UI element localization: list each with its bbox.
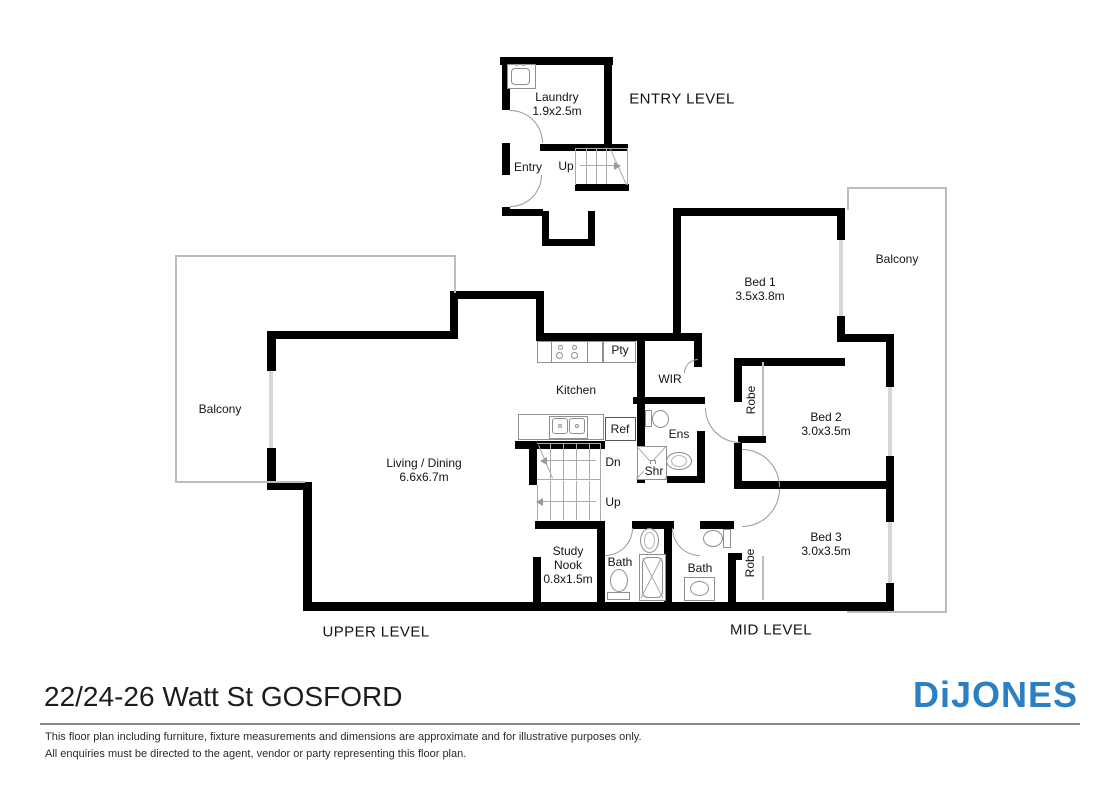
cooktop-burner <box>572 345 577 350</box>
wall <box>542 239 595 246</box>
balcony-right-label: Balcony <box>876 252 919 266</box>
disclaimer-line-2: All enquiries must be directed to the ag… <box>45 748 466 760</box>
wall <box>738 436 766 443</box>
balcony-left-label: Balcony <box>199 402 242 416</box>
wall <box>667 476 705 483</box>
stair-riser <box>576 444 577 479</box>
ens-basin-inner <box>671 455 687 467</box>
wall <box>633 397 705 404</box>
wall <box>734 443 742 483</box>
bath2-toilet-tank <box>723 529 731 548</box>
sink-drain <box>575 424 579 428</box>
room-name: Living / Dining <box>386 456 461 470</box>
robe-bed2-label: Robe <box>744 386 758 415</box>
wall <box>267 448 276 490</box>
bath1-label: Bath <box>608 555 633 569</box>
balcony-right-outline <box>945 187 947 613</box>
bed2-label: Bed 2 3.0x3.5m <box>801 410 850 438</box>
dijones-logo: DiJONES <box>913 674 1078 716</box>
room-dims: 3.0x3.5m <box>801 424 850 438</box>
room-name: Bed 3 <box>801 530 850 544</box>
pantry-label: Pty <box>611 343 628 357</box>
disclaimer-line-1: This floor plan including furniture, fix… <box>45 731 642 743</box>
wall <box>267 331 276 371</box>
sliding-door-bed1 <box>839 240 843 316</box>
robe-bed2-line <box>762 362 764 436</box>
room-name: Bed 1 <box>735 275 784 289</box>
wall <box>673 208 845 216</box>
room-dims: 3.5x3.8m <box>735 289 784 303</box>
kitchen-label: Kitchen <box>556 383 596 397</box>
wall <box>886 334 894 387</box>
wall <box>734 358 742 402</box>
robe-bed3-label: Robe <box>743 549 757 578</box>
stair-riser <box>563 444 564 479</box>
entry-stair-arrow <box>580 165 616 166</box>
stairs-outline <box>537 443 601 444</box>
ens-toilet-bowl <box>652 410 669 428</box>
shr-label: Shr <box>644 464 665 478</box>
wall <box>510 209 543 216</box>
entry-label: Entry <box>514 160 542 174</box>
entry-stairs-outline <box>627 148 628 185</box>
entry-level-label: ENTRY LEVEL <box>629 91 735 108</box>
wall <box>575 184 629 191</box>
bath1-toilet-tank <box>607 592 630 600</box>
ref-label: Ref <box>610 422 631 436</box>
balcony-right-outline <box>847 611 947 613</box>
upper-level-label: UPPER LEVEL <box>323 624 430 641</box>
balcony-left-outline <box>454 255 456 293</box>
sliding-door-living <box>269 371 273 448</box>
wall <box>728 556 736 603</box>
dn-arrowhead <box>540 457 547 465</box>
dn-label: Dn <box>605 455 620 469</box>
laundry-tap <box>515 64 518 66</box>
bath2-door-arc <box>672 528 700 556</box>
bed3-label: Bed 3 3.0x3.5m <box>801 530 850 558</box>
laundry-tap <box>522 64 525 66</box>
room-name: Bed 2 <box>801 410 850 424</box>
bath1-door-arc <box>605 528 633 556</box>
bath2-toilet-bowl <box>703 530 723 547</box>
wall <box>597 524 605 604</box>
balcony-right-outline <box>847 187 849 210</box>
wall <box>604 57 612 151</box>
wir-label: WIR <box>658 372 681 386</box>
divider-line <box>40 723 1080 725</box>
bed3-door-arc <box>742 489 780 527</box>
entry-stair-riser <box>596 149 597 184</box>
laundry-label: Laundry 1.9x2.5m <box>532 90 581 118</box>
up-main-label: Up <box>605 495 620 509</box>
up-entry-label: Up <box>558 159 573 173</box>
room-dims: 3.0x3.5m <box>801 544 850 558</box>
wall <box>673 208 681 341</box>
stair-riser <box>589 444 590 479</box>
room-dims: 1.9x2.5m <box>532 104 581 118</box>
bath2-label: Bath <box>688 561 713 575</box>
robe-bed3-line <box>762 556 764 600</box>
bath2-basin <box>690 581 709 596</box>
living-label: Living / Dining 6.6x6.7m <box>386 456 461 484</box>
entry-stair-riser <box>606 149 607 184</box>
up-arrowhead <box>536 498 543 506</box>
bath1-toilet-bowl <box>610 569 628 592</box>
entry-door-arc <box>510 175 542 207</box>
balcony-left-outline <box>175 481 305 483</box>
bed1-label: Bed 1 3.5x3.8m <box>735 275 784 303</box>
room-dims: 6.6x6.7m <box>386 470 461 484</box>
entry-stairs-outline <box>575 148 628 149</box>
wall <box>529 441 537 485</box>
bath1-basin-inner <box>644 532 655 549</box>
study-nook-label: Study Nook 0.8x1.5m <box>540 544 596 586</box>
wall <box>738 358 845 366</box>
up-arrow <box>542 501 596 502</box>
hall-door-arc <box>705 408 740 443</box>
bed2-door-arc <box>742 449 780 487</box>
mid-level-label: MID LEVEL <box>730 622 812 639</box>
window-bed2 <box>888 387 892 456</box>
balcony-left-outline <box>175 255 177 483</box>
cooktop-burner <box>556 352 563 359</box>
balcony-right-outline <box>847 187 947 189</box>
wall <box>536 291 544 339</box>
sink-drain <box>558 424 562 428</box>
laundry-tub-basin <box>511 68 530 85</box>
wall <box>700 521 734 529</box>
wall <box>450 291 544 299</box>
wall <box>837 208 845 240</box>
cooktop-burner <box>558 345 563 350</box>
ens-toilet-tank <box>645 410 652 427</box>
cooktop-burner <box>571 352 578 359</box>
wall <box>502 143 510 175</box>
window-bed3 <box>888 522 892 583</box>
floorplan-canvas: ENTRY LEVEL UPPER LEVEL MID LEVEL Laundr… <box>0 0 1120 791</box>
entry-stairs-outline <box>575 148 576 185</box>
wall <box>267 331 458 339</box>
dn-arrow <box>546 460 596 461</box>
entry-stair-riser <box>586 149 587 184</box>
stairs-outline <box>537 479 601 480</box>
wall <box>303 482 312 611</box>
stairs-outline <box>600 443 601 521</box>
room-dims: 0.8x1.5m <box>540 572 596 586</box>
wir-door-arc <box>684 359 698 373</box>
balcony-left-outline <box>175 255 456 257</box>
page-title: 22/24-26 Watt St GOSFORD <box>44 681 402 713</box>
entry-stair-arrowhead <box>614 162 621 170</box>
wall <box>886 489 894 522</box>
room-name: Laundry <box>532 90 581 104</box>
wall <box>502 207 510 216</box>
ens-label: Ens <box>669 427 690 441</box>
room-name: Study Nook <box>540 544 596 572</box>
wall <box>535 521 605 529</box>
